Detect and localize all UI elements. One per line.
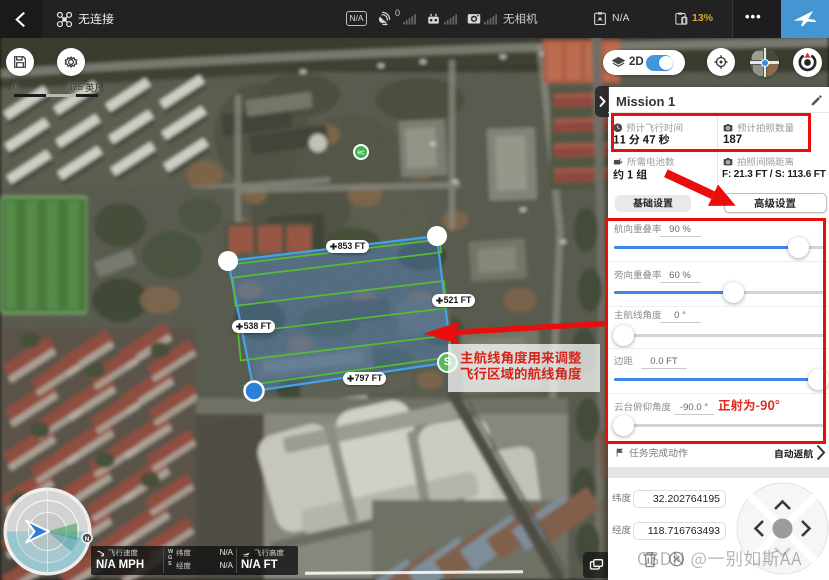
svg-text:RC: RC [357, 151, 365, 157]
svg-text:N: N [85, 536, 90, 543]
